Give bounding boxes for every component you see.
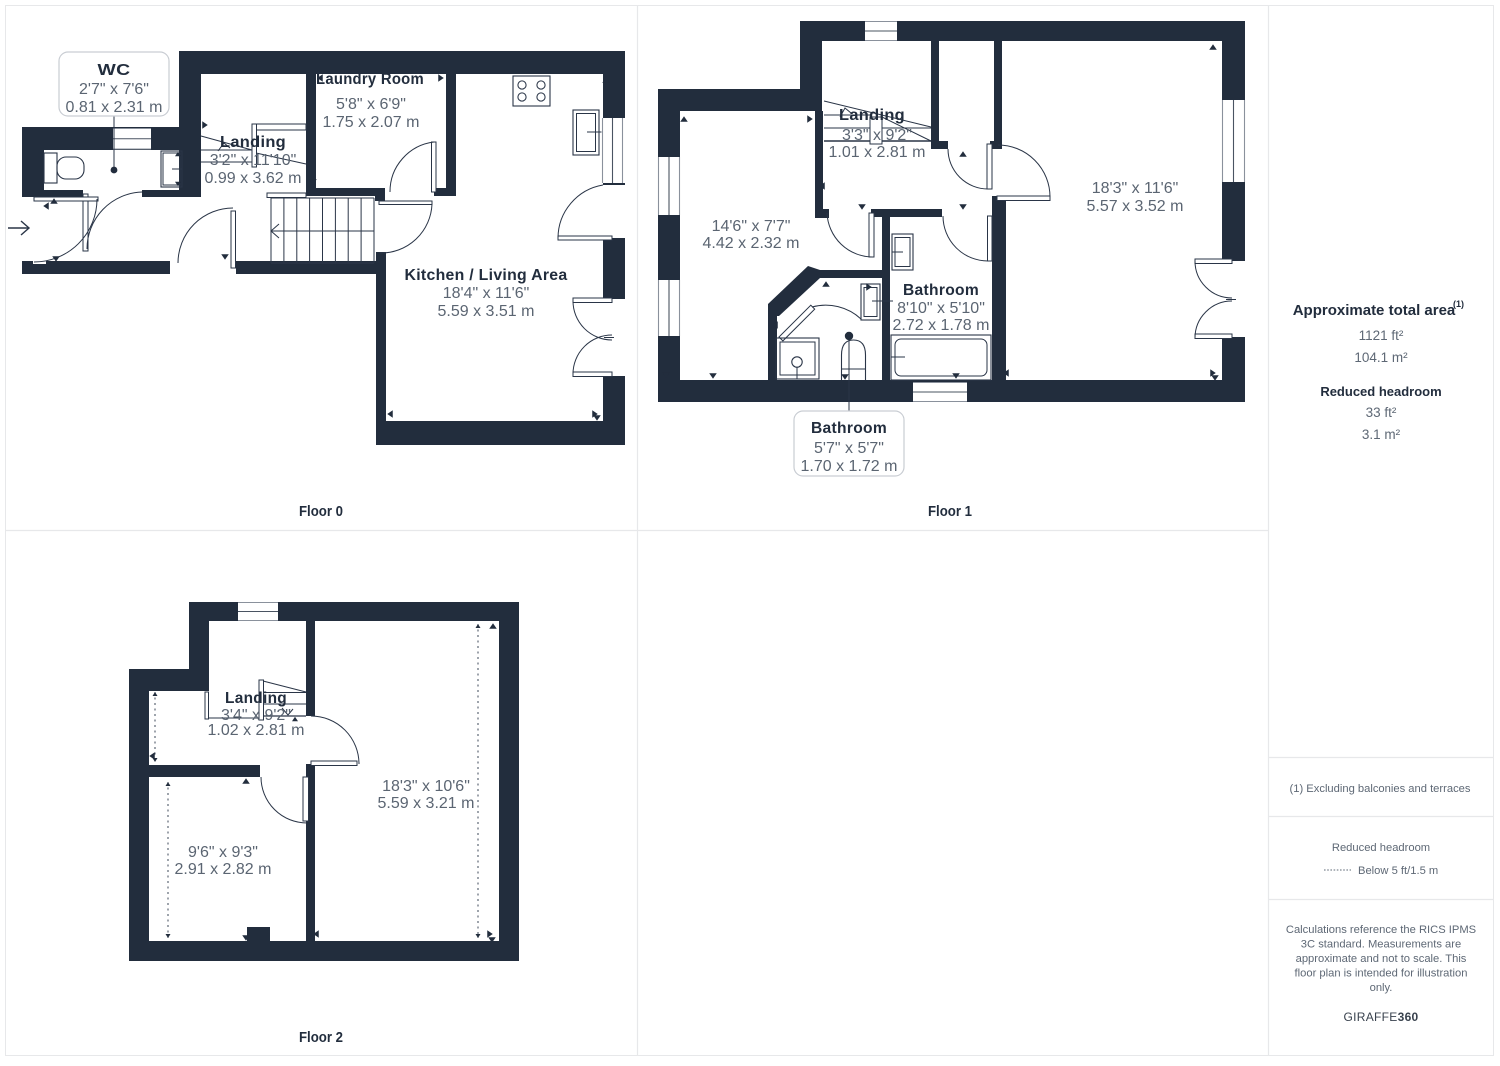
svg-text:5.59 x 3.21 m: 5.59 x 3.21 m xyxy=(378,795,475,812)
svg-text:Floor 1: Floor 1 xyxy=(928,503,972,520)
svg-text:(1): (1) xyxy=(1453,299,1464,309)
svg-text:2.72 x 1.78 m: 2.72 x 1.78 m xyxy=(893,317,990,334)
svg-text:3C standard. Measurements are: 3C standard. Measurements are xyxy=(1301,939,1461,951)
svg-text:18'3" x 11'6": 18'3" x 11'6" xyxy=(1092,180,1179,197)
svg-text:4.42 x 2.32 m: 4.42 x 2.32 m xyxy=(703,235,800,252)
svg-text:Calculations reference the RIC: Calculations reference the RICS IPMS xyxy=(1286,924,1476,936)
svg-text:1121 ft²: 1121 ft² xyxy=(1359,328,1404,343)
svg-text:2.91 x 2.82 m: 2.91 x 2.82 m xyxy=(175,861,272,878)
svg-text:1.01 x 2.81 m: 1.01 x 2.81 m xyxy=(829,144,926,161)
svg-text:Floor 0: Floor 0 xyxy=(299,503,343,520)
svg-text:GIRAFFE360: GIRAFFE360 xyxy=(1343,1010,1418,1024)
svg-text:33 ft²: 33 ft² xyxy=(1366,405,1397,420)
svg-text:Reduced headroom: Reduced headroom xyxy=(1332,842,1430,854)
svg-text:104.1 m²: 104.1 m² xyxy=(1354,350,1408,365)
svg-text:8'10" x 5'10": 8'10" x 5'10" xyxy=(897,300,985,317)
svg-text:3.1 m²: 3.1 m² xyxy=(1362,427,1401,442)
svg-text:14'6" x 7'7": 14'6" x 7'7" xyxy=(712,218,791,235)
svg-text:5.57 x 3.52 m: 5.57 x 3.52 m xyxy=(1087,198,1184,215)
svg-text:5.59 x 3.51 m: 5.59 x 3.51 m xyxy=(438,303,535,320)
svg-text:Below 5 ft/1.5 m: Below 5 ft/1.5 m xyxy=(1358,865,1438,877)
svg-text:2'7" x 7'6": 2'7" x 7'6" xyxy=(79,81,149,98)
svg-text:WC: WC xyxy=(98,62,131,79)
svg-text:Landing: Landing xyxy=(839,107,905,124)
svg-text:9'6" x 9'3": 9'6" x 9'3" xyxy=(188,844,258,861)
svg-text:0.81 x 2.31 m: 0.81 x 2.31 m xyxy=(66,99,163,116)
svg-text:Reduced headroom: Reduced headroom xyxy=(1320,384,1441,399)
svg-text:3'2" x 11'10": 3'2" x 11'10" xyxy=(210,152,297,169)
svg-text:18'4" x 11'6": 18'4" x 11'6" xyxy=(443,285,530,302)
svg-text:Kitchen / Living Area: Kitchen / Living Area xyxy=(405,267,568,284)
svg-text:only.: only. xyxy=(1370,982,1393,994)
svg-text:5'7" x 5'7": 5'7" x 5'7" xyxy=(814,440,884,457)
svg-text:1.70 x 1.72 m: 1.70 x 1.72 m xyxy=(801,458,898,475)
svg-text:3'3" x 9'2": 3'3" x 9'2" xyxy=(842,127,912,144)
svg-text:5'8" x 6'9": 5'8" x 6'9" xyxy=(336,96,406,113)
svg-text:floor plan is intended for ill: floor plan is intended for illustration xyxy=(1295,968,1468,980)
svg-text:18'3" x 10'6": 18'3" x 10'6" xyxy=(382,778,470,795)
svg-text:Landing: Landing xyxy=(220,134,286,151)
svg-text:Bathroom: Bathroom xyxy=(903,282,979,299)
svg-text:(1) Excluding balconies and te: (1) Excluding balconies and terraces xyxy=(1290,783,1471,795)
svg-text:Floor 2: Floor 2 xyxy=(299,1029,343,1046)
svg-text:Approximate total area: Approximate total area xyxy=(1293,302,1456,319)
svg-text:1.02 x 2.81 m: 1.02 x 2.81 m xyxy=(208,722,305,739)
svg-text:Bathroom: Bathroom xyxy=(811,420,887,437)
svg-text:1.75 x 2.07 m: 1.75 x 2.07 m xyxy=(323,114,420,131)
svg-text:Landing: Landing xyxy=(225,690,287,707)
svg-text:approximate and not to scale.: approximate and not to scale. This xyxy=(1296,953,1467,965)
svg-text:0.99 x 3.62 m: 0.99 x 3.62 m xyxy=(205,170,302,187)
svg-text:Laundry Room: Laundry Room xyxy=(316,71,424,88)
